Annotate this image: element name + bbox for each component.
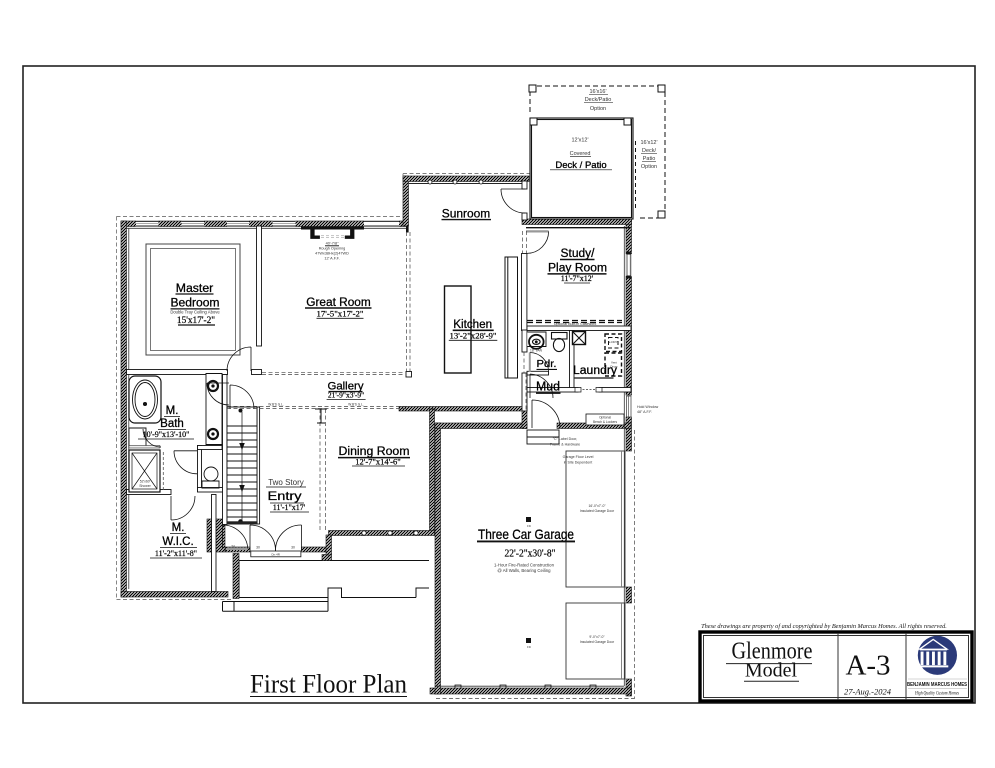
svg-text:Optional Built-In Casework: Optional Built-In Casework [554,322,597,326]
svg-text:Deck/Patio: Deck/Patio [585,97,612,103]
svg-text:These drawings are property: These drawings are property of and copyr… [701,623,947,630]
svg-text:BENJAMIN MARCUS HOMES: BENJAMIN MARCUS HOMES [907,682,967,688]
svg-text:18" VAN: 18" VAN [530,349,543,353]
svg-text:Frame & Hardware: Frame & Hardware [550,443,580,447]
svg-text:W.I.C.: W.I.C. [162,536,193,548]
svg-text:M.: M. [166,405,179,417]
svg-text:Shower: Shower [139,484,151,488]
svg-text:Insulated Garage Door: Insulated Garage Door [580,640,615,644]
svg-text:A-3: A-3 [845,650,890,682]
svg-text:Play Room: Play Room [548,261,607,275]
svg-text:Option: Option [641,164,657,170]
svg-text:16'x16': 16'x16' [589,89,606,95]
svg-text:10'-9"x13'-10": 10'-9"x13'-10" [143,430,190,439]
svg-text:Hold Window: Hold Window [637,405,659,409]
svg-text:30: 30 [291,546,295,550]
svg-text:16'-0"x7'-0": 16'-0"x7'-0" [588,504,606,508]
svg-text:27-Aug.-2024: 27-Aug.-2024 [844,687,892,697]
svg-text:47Wx38Hx(2)47WD: 47Wx38Hx(2)47WD [315,252,349,256]
svg-text:Deck / Patio: Deck / Patio [555,160,606,171]
svg-text:Rough Opening: Rough Opening [319,247,346,251]
svg-text:W.B'S G.L.: W.B'S G.L. [348,402,364,406]
svg-text:11'-2"x11'-8": 11'-2"x11'-8" [155,549,197,558]
svg-text:22'-2"x30'-8": 22'-2"x30'-8" [505,548,556,559]
svg-text:12'x12': 12'x12' [571,138,588,144]
svg-text:Great Room: Great Room [306,295,371,309]
svg-text:@ All Walls, Bearing Ceiling: @ All Walls, Bearing Ceiling [497,568,551,573]
svg-text:Deck/: Deck/ [642,148,657,154]
svg-text:12' A.F.F.: 12' A.F.F. [324,257,339,261]
svg-text:Two Story: Two Story [268,478,304,487]
svg-text:Bench & Lockers: Bench & Lockers [593,420,618,424]
svg-text:in Site Dependent: in Site Dependent [564,461,593,465]
svg-text:15'x17'-2": 15'x17'-2" [177,316,215,326]
svg-text:First Floor Plan: First Floor Plan [250,670,407,699]
svg-text:W.B'S G.L.: W.B'S G.L. [268,402,284,406]
svg-text:Study/: Study/ [561,246,596,260]
svg-text:9'-0"x7'-0": 9'-0"x7'-0" [589,635,605,639]
svg-text:48" A.F.F.: 48" A.F.F. [637,410,652,414]
svg-text:High Quality Custom Homes: High Quality Custom Homes [914,690,959,696]
svg-text:Laundry: Laundry [573,365,617,377]
svg-text:11'-1"x17': 11'-1"x17' [273,503,306,512]
svg-text:Double Tray Ceiling Above: Double Tray Ceiling Above [170,310,220,315]
svg-text:1-Hour Fire-Rated Construction: 1-Hour Fire-Rated Construction [494,563,555,568]
svg-text:FD: FD [527,645,531,649]
svg-text:Entry: Entry [268,489,303,503]
svg-text:Option: Option [590,106,606,112]
svg-text:Insulated Garage Door: Insulated Garage Door [580,509,615,513]
svg-text:Garage Floor Level: Garage Floor Level [563,455,594,459]
svg-text:E-DRY: E-DRY [608,340,617,344]
svg-text:Bedroom: Bedroom [171,296,220,310]
svg-text:17'-5"x17'-2": 17'-5"x17'-2" [317,309,364,319]
svg-text:Pdr.: Pdr. [537,358,557,370]
svg-text:Dn 4R: Dn 4R [271,552,280,556]
svg-text:Kitchen: Kitchen [453,317,492,331]
svg-text:Sunroom: Sunroom [442,206,491,220]
svg-text:30: 30 [256,546,260,550]
svg-text:11'-7"x12': 11'-7"x12' [561,274,594,283]
svg-text:Covered: Covered [570,151,591,157]
svg-text:"C" Label Door,: "C" Label Door, [553,437,578,441]
svg-text:Mud: Mud [536,380,560,394]
svg-text:16'x12': 16'x12' [640,140,657,146]
svg-text:Three Car Garage: Three Car Garage [478,527,574,542]
svg-text:Patio: Patio [643,156,656,162]
svg-text:M.: M. [172,522,185,534]
svg-text:Master: Master [176,281,214,295]
svg-text:Bath: Bath [160,418,184,430]
svg-text:13'-2"x28'-9": 13'-2"x28'-9" [450,331,497,341]
svg-text:40'-7/8": 40'-7/8" [326,242,339,246]
svg-text:Model: Model [745,660,798,682]
